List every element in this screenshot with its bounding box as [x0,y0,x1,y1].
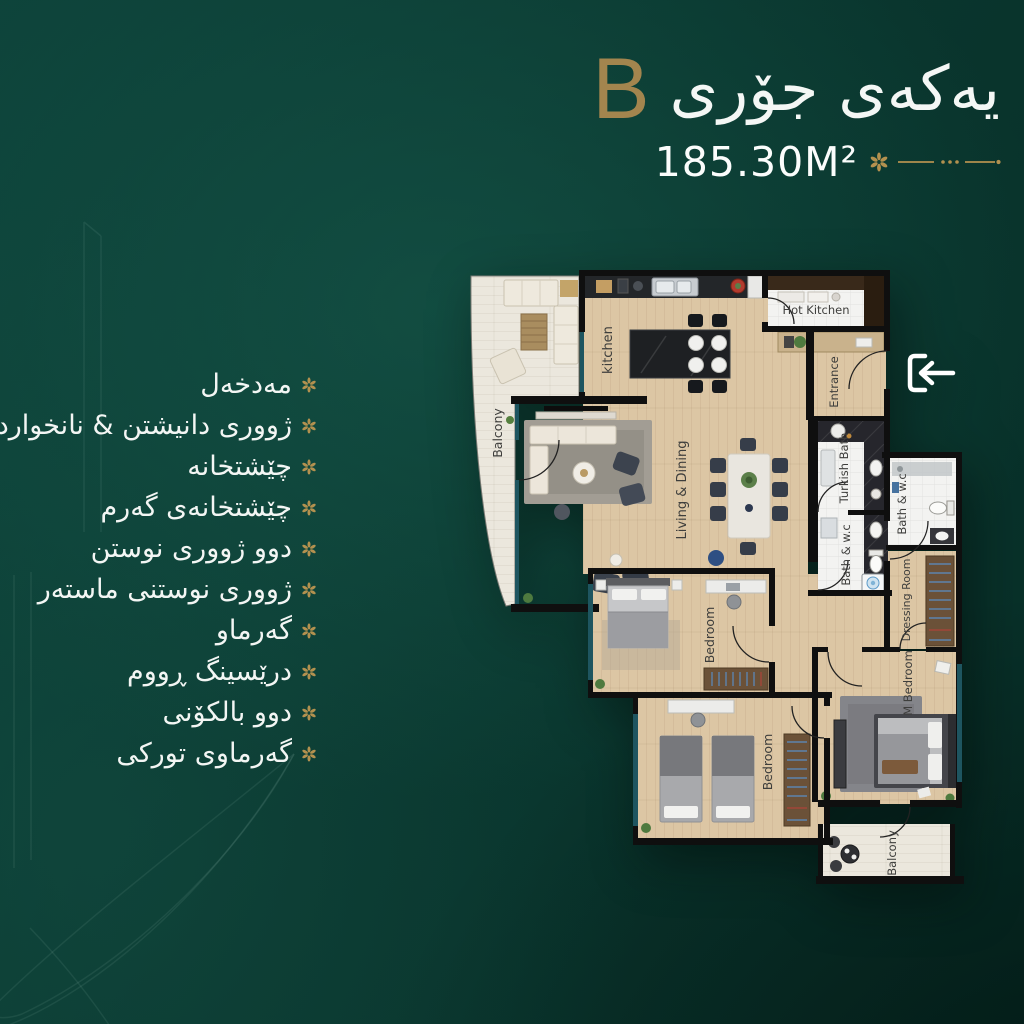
page-title: یەکەی جۆری B [592,46,1000,132]
feature-label: دوو ژووری نوستن [91,533,292,564]
feature-item: ژووری دانیشتن & نانخواردن [0,405,317,446]
feature-label: دوو بالکۆنی [162,697,292,728]
unit-letter: B [592,46,649,132]
feature-label: گەرماوی تورکی [116,738,292,769]
unit-title-kurdish: یەکەی جۆری [670,53,1000,124]
room-label-hot-kitchen: Hot Kitchen [782,303,849,317]
room-label-dressing: Dressing Room [900,559,913,642]
flower-bullet-icon [301,746,317,762]
flower-bullet-icon [301,664,317,680]
feature-item: ژووری نوستنی ماستەر [38,569,317,610]
feature-label: ژووری دانیشتن & نانخواردن [0,410,292,441]
feature-item: درێسینگ ڕووم [127,651,317,692]
flower-bullet-icon [301,500,317,516]
room-label-living-dining: Living & Dining [675,440,690,539]
flower-bullet-icon [301,377,317,393]
feature-item: گەرماوی تورکی [116,733,317,774]
feature-label: ژووری نوستنی ماستەر [38,574,292,605]
feature-item: دوو بالکۆنی [162,692,317,733]
feature-label: چێشتخانەی گەرم [100,492,292,523]
feature-label: مەدخەل [200,369,292,400]
flower-bullet-icon [301,459,317,475]
room-label-bedroom-1: Bedroom [702,607,717,664]
feature-item: چێشتخانە [187,446,317,487]
feature-item: چێشتخانەی گەرم [100,487,317,528]
room-label-kitchen: kitchen [601,326,616,374]
area-divider-decoration [868,149,1002,175]
dressing-wardrobe [926,556,954,646]
feature-label: چێشتخانە [187,451,292,482]
flower-bullet-icon [301,541,317,557]
room-label-bath-2: Bath & w.c [895,473,909,534]
entrance-furniture [778,332,884,352]
flower-icon [870,153,888,172]
entry-arrow-icon [910,356,953,390]
room-label-bedroom-2: Bedroom [760,734,775,791]
flower-bullet-icon [301,623,317,639]
features-list: مەدخەل ژووری دانیشتن & نانخواردن چێشتخان… [0,364,317,774]
room-label-entrance: Entrance [827,356,841,408]
room-label-balcony-bottom: Balcony [885,830,899,876]
area-value: 185.30M² [655,138,858,186]
room-label-turkish-bath: Turkish Bath [837,433,851,505]
feature-item: گەرماو [216,610,317,651]
flower-bullet-icon [301,705,317,721]
room-label-bath-1: Bath & w.c [839,524,853,585]
floor-plan: Balcony kitchen Hot Kitchen Entrance Liv… [466,268,966,916]
flower-bullet-icon [301,582,317,598]
room-label-master-bedroom: M Bedroom [901,650,915,716]
area-row: 185.30M² [655,138,1002,186]
flower-bullet-icon [301,418,317,434]
feature-label: درێسینگ ڕووم [127,656,292,687]
page-background: یەکەی جۆری B 185.30M² مەدخەل ژووری [0,0,1024,1024]
feature-label: گەرماو [216,615,292,646]
feature-item: دوو ژووری نوستن [91,528,317,569]
room-label-balcony-top: Balcony [490,408,505,458]
feature-item: مەدخەل [200,364,317,405]
